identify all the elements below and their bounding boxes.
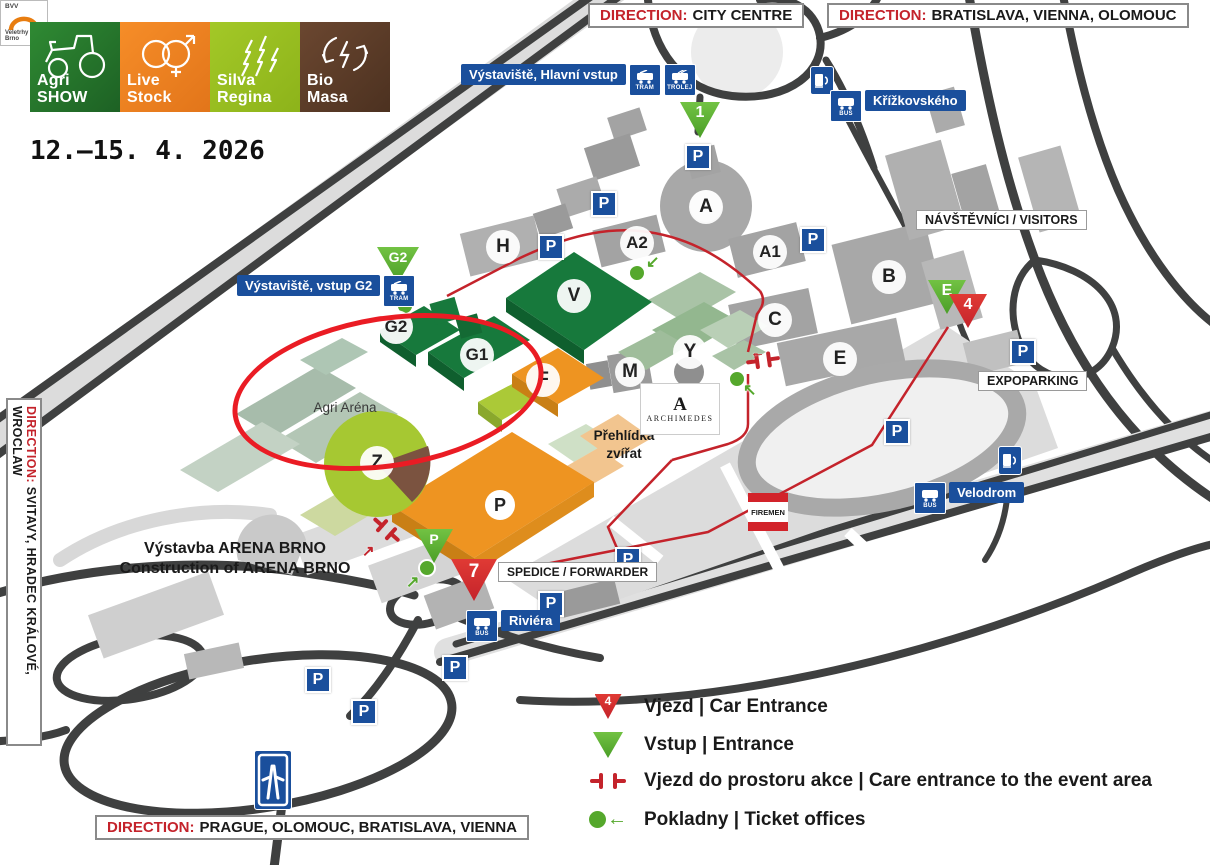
direction-sign-city-centre: DIRECTION:CITY CENTRE: [588, 3, 804, 28]
parking-marker: P: [538, 234, 564, 260]
legend-event-area: Vjezd do prostoru akce | Care entrance t…: [588, 770, 1152, 792]
archimedes-logo-a: A: [673, 395, 687, 414]
event-date: 12.–15. 4. 2026: [30, 136, 265, 166]
stop-label: Velodrom: [949, 482, 1024, 503]
legend-label: Vjezd | Car Entrance: [644, 696, 828, 718]
stop-main-entrance: Výstaviště, Hlavní vstup TRAM TROLEJ: [461, 64, 696, 96]
direction-prefix: DIRECTION:: [839, 7, 927, 24]
legend-entrance: Vstup | Entrance: [588, 732, 794, 758]
direction-text: BRATISLAVA, VIENNA, OLOMOUC: [932, 7, 1177, 24]
hall-badge-A1: A1: [753, 235, 787, 269]
parking-marker: P: [442, 655, 468, 681]
archimedes-label: A ARCHIMEDES: [640, 383, 720, 435]
hall-badge-E: E: [823, 342, 857, 376]
logo-biomasa: Bio Masa: [300, 22, 390, 112]
event-area-entrance-icon: [590, 773, 626, 789]
bus-caption: BUS: [475, 631, 489, 637]
stop-velodrom: BUS Velodrom: [914, 482, 1024, 514]
prehlidka-label-line2: zvířat: [580, 446, 668, 461]
gate-arrow-icon: ↗: [362, 542, 375, 560]
hall-badge-V: V: [557, 279, 591, 313]
agri-arena-label: Agri Aréna: [275, 400, 415, 415]
parking-marker: P: [685, 144, 711, 170]
hall-badge-Z: Z: [360, 446, 394, 480]
hall-badge-B: B: [872, 260, 906, 294]
logo-line: Masa: [307, 89, 348, 106]
bvv-abbrev: BVV: [5, 3, 18, 10]
bus-caption: BUS: [923, 503, 937, 509]
parking-marker: P: [884, 419, 910, 445]
parking-marker: P: [305, 667, 331, 693]
legend-label: Pokladny | Ticket offices: [644, 809, 865, 831]
tram-caption: TRAM: [636, 85, 655, 91]
entrance-icon: [593, 732, 623, 758]
tram-caption: TRAM: [390, 296, 409, 302]
parking-marker: P: [800, 227, 826, 253]
hall-badge-H: H: [486, 230, 520, 264]
logo-livestock: Live Stock: [120, 22, 210, 112]
stop-riviera: BUS Riviéra: [466, 610, 560, 642]
bus-caption: BUS: [839, 111, 853, 117]
firemen-sign: FIREMEN: [748, 493, 788, 531]
legend-car-entrance: 4 Vjezd | Car Entrance: [588, 694, 828, 719]
stop-krizkovskeho: BUS Křížkovského: [830, 90, 966, 122]
car-entrance-icon: 4: [595, 694, 622, 719]
ticket-arrow-icon: ↙: [646, 252, 659, 272]
trolleybus-caption: TROLEJ: [667, 85, 692, 91]
direction-text: PRAGUE, OLOMOUC, BRATISLAVA, VIENNA: [200, 819, 518, 836]
logo-line: SHOW: [37, 89, 88, 106]
direction-sign-bratislava: DIRECTION:BRATISLAVA, VIENNA, OLOMOUC: [827, 3, 1189, 28]
logo-line: Regina: [217, 89, 272, 106]
ticket-arrow-icon: ↗: [406, 572, 419, 592]
hall-badge-A: A: [689, 190, 723, 224]
tram-icon: TRAM: [629, 64, 661, 96]
expoparking-label: EXPOPARKING: [978, 371, 1087, 391]
motorway-icon: [254, 750, 292, 810]
bus-icon: BUS: [466, 610, 498, 642]
car-entrance-badge: 4: [605, 695, 612, 719]
bus-icon: BUS: [830, 90, 862, 122]
direction-prefix: DIRECTION:: [107, 819, 195, 836]
logo-line: Stock: [127, 89, 172, 106]
fuel-station-icon: [998, 446, 1022, 475]
legend-label: Vjezd do prostoru akce | Care entrance t…: [644, 770, 1152, 792]
spedice-label: SPEDICE / FORWARDER: [498, 562, 657, 582]
hall-badge-G2: G2: [379, 310, 413, 344]
hall-badge-M: M: [615, 357, 645, 387]
stop-g2: Výstaviště, vstup G2 TRAM: [237, 275, 415, 307]
direction-sign-svitavy: DIRECTION: SVITAVY, HRADEC KRÁLOVÉ, WROC…: [6, 398, 42, 746]
visitors-label: NÁVŠTĚVNÍCI / VISITORS: [916, 210, 1087, 230]
gate-arrow-icon: ←: [750, 344, 765, 361]
parking-marker: P: [1010, 339, 1036, 365]
site-map: Agri SHOW Live Stock Silva: [0, 0, 1210, 865]
construction-label-en: Construction of ARENA BRNO: [100, 560, 370, 578]
parking-marker: P: [591, 191, 617, 217]
logo-line: Live: [127, 72, 160, 89]
logo-line: Agri: [37, 72, 70, 89]
construction-label-cs: Výstavba ARENA BRNO: [100, 540, 370, 558]
logo-line: Bio: [307, 72, 333, 89]
logo-line: Silva: [217, 72, 255, 89]
direction-prefix: DIRECTION:: [24, 406, 38, 483]
stop-label: Křížkovského: [865, 90, 966, 111]
legend-label: Vstup | Entrance: [644, 734, 794, 756]
direction-sign-prague: DIRECTION:PRAGUE, OLOMOUC, BRATISLAVA, V…: [95, 815, 529, 840]
ticket-arrow-icon: ↖: [743, 380, 756, 400]
archimedes-name: ARCHIMEDES: [646, 414, 713, 423]
stop-label: Riviéra: [501, 610, 560, 631]
stop-label: Výstaviště, Hlavní vstup: [461, 64, 626, 85]
hall-badge-C: C: [758, 303, 792, 337]
event-logo-banner: Agri SHOW Live Stock Silva: [30, 22, 390, 112]
hall-badge-F: F: [526, 363, 560, 397]
hall-badge-G1: G1: [460, 338, 494, 372]
direction-prefix: DIRECTION:: [600, 7, 688, 24]
parking-marker: P: [351, 699, 377, 725]
legend-tickets: ← Pokladny | Ticket offices: [588, 808, 865, 831]
tram-icon: TRAM: [383, 275, 415, 307]
logo-agrishow: Agri SHOW: [30, 22, 120, 112]
direction-text: CITY CENTRE: [693, 7, 793, 24]
ticket-office-icon: ←: [588, 808, 628, 831]
parking-garage-badge: P: [485, 490, 515, 520]
hall-badge-Y: Y: [673, 335, 707, 369]
bus-icon: BUS: [914, 482, 946, 514]
trolleybus-icon: TROLEJ: [664, 64, 696, 96]
logo-silvaregina: Silva Regina: [210, 22, 300, 112]
stop-label: Výstaviště, vstup G2: [237, 275, 380, 296]
